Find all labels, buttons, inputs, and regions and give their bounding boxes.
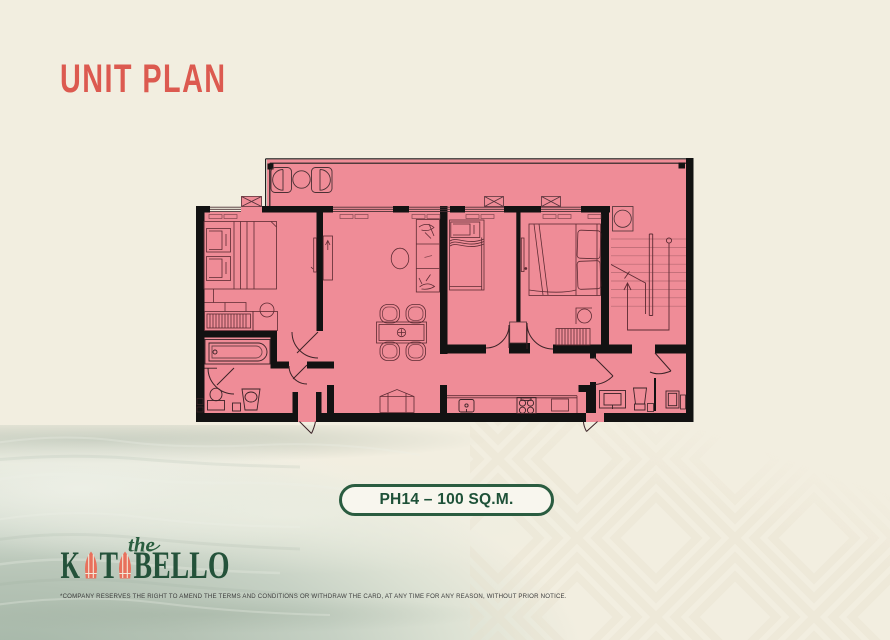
svg-text:BELLO: BELLO: [134, 544, 230, 587]
svg-text:T: T: [100, 544, 119, 587]
svg-text:K: K: [61, 544, 81, 587]
